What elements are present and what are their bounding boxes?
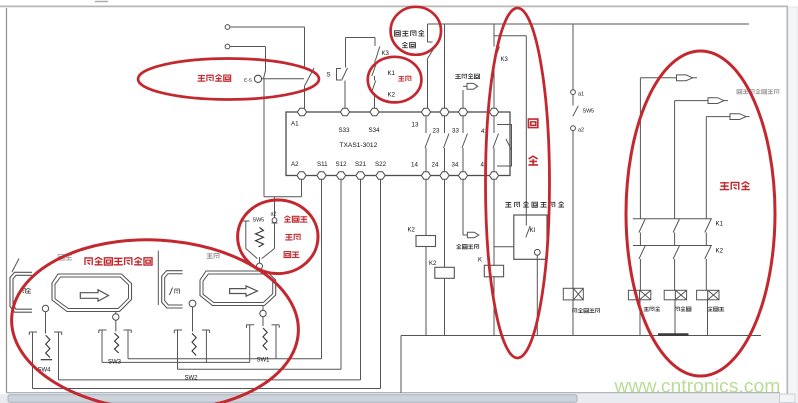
svg-text:TXAS1-3012: TXAS1-3012 xyxy=(340,142,378,149)
svg-text:14: 14 xyxy=(411,162,418,169)
svg-text:K2: K2 xyxy=(388,92,396,99)
svg-text:a2: a2 xyxy=(271,211,277,217)
svg-text:SW5: SW5 xyxy=(583,109,595,115)
svg-text:S11: S11 xyxy=(317,161,328,168)
svg-text:K2: K2 xyxy=(716,247,724,254)
svg-text:A2: A2 xyxy=(291,161,299,168)
svg-text:E-S: E-S xyxy=(244,77,252,83)
svg-text:S33: S33 xyxy=(339,127,351,134)
svg-text:K2: K2 xyxy=(408,228,416,234)
svg-text:SW5: SW5 xyxy=(253,218,265,224)
svg-text:SW3: SW3 xyxy=(108,360,122,366)
svg-text:13: 13 xyxy=(412,122,419,129)
svg-text:www.cntronics.com: www.cntronics.com xyxy=(614,376,781,398)
svg-text:S21: S21 xyxy=(355,161,367,168)
svg-text:a2: a2 xyxy=(578,127,584,133)
svg-text:K1: K1 xyxy=(388,70,396,77)
svg-text:34: 34 xyxy=(452,162,459,169)
svg-text:K: K xyxy=(478,258,482,264)
svg-text:S12: S12 xyxy=(336,161,348,168)
svg-text:K1: K1 xyxy=(716,221,724,228)
svg-text:KI: KI xyxy=(530,227,536,234)
svg-text:S: S xyxy=(327,73,331,79)
svg-text:23: 23 xyxy=(433,128,440,135)
svg-text:33: 33 xyxy=(452,128,459,135)
svg-text:K2: K2 xyxy=(429,261,437,267)
svg-text:S22: S22 xyxy=(375,161,387,168)
svg-text:A1: A1 xyxy=(291,121,299,128)
svg-text:SW1: SW1 xyxy=(257,357,271,363)
svg-text:S34: S34 xyxy=(369,127,381,134)
svg-text:a1: a1 xyxy=(578,91,584,97)
svg-text:SW2: SW2 xyxy=(185,376,199,382)
svg-text:24: 24 xyxy=(432,162,439,169)
svg-text:K3: K3 xyxy=(501,57,509,63)
